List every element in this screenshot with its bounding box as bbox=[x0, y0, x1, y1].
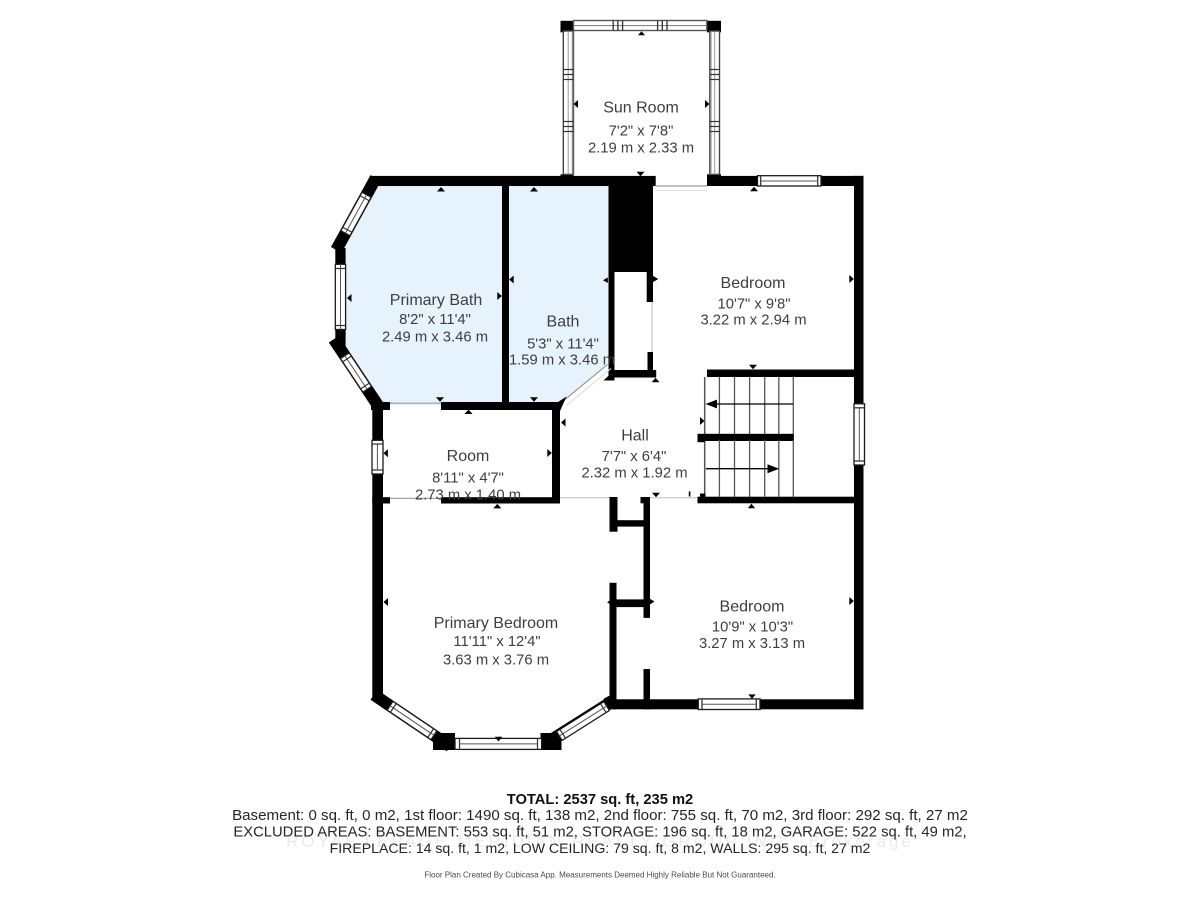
svg-text:2.49 m x 3.46 m: 2.49 m x 3.46 m bbox=[382, 330, 488, 346]
svg-text:FIREPLACE: 14 sq. ft, 1 m2, LO: FIREPLACE: 14 sq. ft, 1 m2, LOW CEILING:… bbox=[330, 840, 871, 856]
svg-text:3.27 m x 3.13 m: 3.27 m x 3.13 m bbox=[699, 636, 805, 652]
svg-text:1.59 m x 3.46 m: 1.59 m x 3.46 m bbox=[509, 353, 615, 369]
svg-text:2.73 m x 1.40 m: 2.73 m x 1.40 m bbox=[415, 488, 521, 504]
svg-text:Sun Room: Sun Room bbox=[603, 100, 679, 117]
svg-text:TOTAL: 2537 sq. ft, 235 m2: TOTAL: 2537 sq. ft, 235 m2 bbox=[507, 792, 693, 808]
svg-text:3.22 m x 2.94 m: 3.22 m x 2.94 m bbox=[700, 313, 806, 329]
svg-text:Bedroom: Bedroom bbox=[720, 599, 785, 616]
svg-text:3.63 m x 3.76 m: 3.63 m x 3.76 m bbox=[443, 653, 549, 669]
svg-text:Bedroom: Bedroom bbox=[721, 275, 786, 292]
svg-text:2.32 m x 1.92 m: 2.32 m x 1.92 m bbox=[581, 466, 687, 482]
svg-text:7'7" x 6'4": 7'7" x 6'4" bbox=[602, 449, 667, 465]
svg-text:7'2" x 7'8": 7'2" x 7'8" bbox=[609, 124, 674, 140]
svg-text:8'2" x 11'4": 8'2" x 11'4" bbox=[399, 312, 471, 328]
svg-text:2.19 m x 2.33 m: 2.19 m x 2.33 m bbox=[588, 141, 694, 157]
svg-text:EXCLUDED AREAS: BASEMENT: 553: EXCLUDED AREAS: BASEMENT: 553 sq. ft, 51… bbox=[233, 824, 966, 840]
svg-text:Primary Bath: Primary Bath bbox=[390, 292, 482, 309]
svg-text:Bath: Bath bbox=[547, 314, 580, 331]
svg-text:Room: Room bbox=[447, 448, 490, 465]
svg-text:Floor Plan Created By Cubicasa: Floor Plan Created By Cubicasa App. Meas… bbox=[424, 870, 775, 879]
svg-text:10'9" x 10'3": 10'9" x 10'3" bbox=[712, 620, 793, 636]
svg-text:Basement: 0 sq. ft, 0 m2, 1st: Basement: 0 sq. ft, 0 m2, 1st floor: 149… bbox=[232, 807, 968, 824]
svg-text:11'11" x 12'4": 11'11" x 12'4" bbox=[453, 634, 540, 650]
svg-text:Primary Bedroom: Primary Bedroom bbox=[434, 615, 558, 632]
svg-text:8'11" x 4'7": 8'11" x 4'7" bbox=[432, 471, 504, 487]
svg-text:10'7" x 9'8": 10'7" x 9'8" bbox=[718, 297, 791, 313]
svg-text:5'3" x 11'4": 5'3" x 11'4" bbox=[527, 337, 599, 353]
svg-text:Hall: Hall bbox=[621, 428, 649, 445]
